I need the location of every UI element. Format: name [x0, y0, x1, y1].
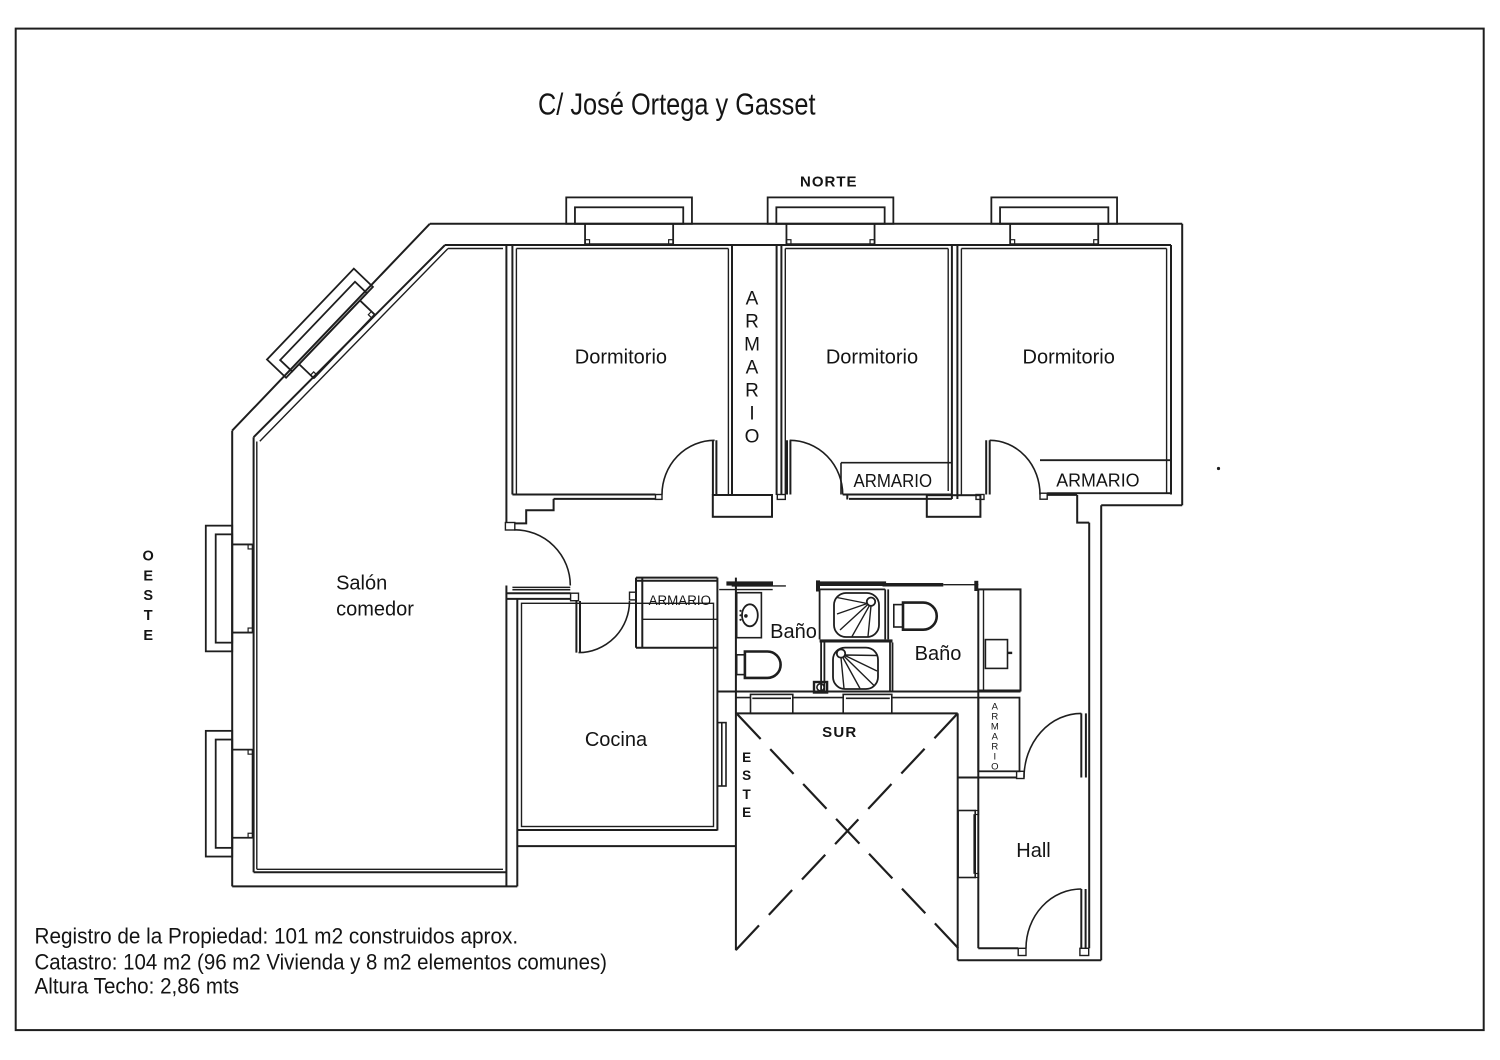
svg-text:Dormitorio: Dormitorio [575, 346, 667, 368]
svg-text:M: M [744, 335, 760, 356]
svg-text:E: E [143, 628, 153, 644]
svg-text:S: S [143, 588, 153, 604]
svg-text:R: R [745, 380, 759, 401]
svg-text:Baño: Baño [915, 643, 962, 665]
svg-text:SUR: SUR [822, 724, 857, 741]
svg-text:Baño: Baño [770, 621, 817, 643]
svg-text:Salón: Salón [336, 573, 387, 595]
svg-text:NORTE: NORTE [800, 173, 858, 190]
svg-text:A: A [746, 357, 759, 378]
svg-text:Hall: Hall [1016, 840, 1050, 862]
svg-text:ARMARIO: ARMARIO [854, 471, 933, 491]
svg-text:Altura Techo: 2,86 mts: Altura Techo: 2,86 mts [35, 973, 240, 998]
svg-text:E: E [143, 568, 153, 584]
svg-text:E: E [742, 805, 751, 820]
svg-text:comedor: comedor [336, 599, 414, 621]
svg-text:Dormitorio: Dormitorio [1023, 346, 1115, 368]
svg-text:T: T [742, 787, 751, 802]
svg-text:Cocina: Cocina [585, 729, 648, 751]
svg-text:ARMARIO: ARMARIO [1056, 470, 1139, 490]
svg-text:I: I [749, 403, 754, 424]
svg-text:O: O [745, 426, 760, 447]
svg-text:R: R [745, 312, 759, 333]
svg-text:A: A [746, 289, 759, 310]
svg-text:C/ José Ortega y Gasset: C/ José Ortega y Gasset [538, 86, 816, 121]
svg-text:E: E [742, 750, 751, 765]
svg-text:T: T [144, 608, 153, 624]
svg-text:Registro de la Propiedad: 101: Registro de la Propiedad: 101 m2 constru… [35, 924, 519, 949]
svg-text:O: O [143, 548, 154, 564]
svg-text:ARMARIO: ARMARIO [649, 593, 711, 608]
svg-text:O: O [991, 761, 998, 772]
svg-text:Catastro: 104 m2 (96 m2 Vivien: Catastro: 104 m2 (96 m2 Vivienda y 8 m2 … [35, 950, 608, 975]
svg-text:S: S [742, 768, 751, 783]
svg-text:Dormitorio: Dormitorio [826, 346, 918, 368]
